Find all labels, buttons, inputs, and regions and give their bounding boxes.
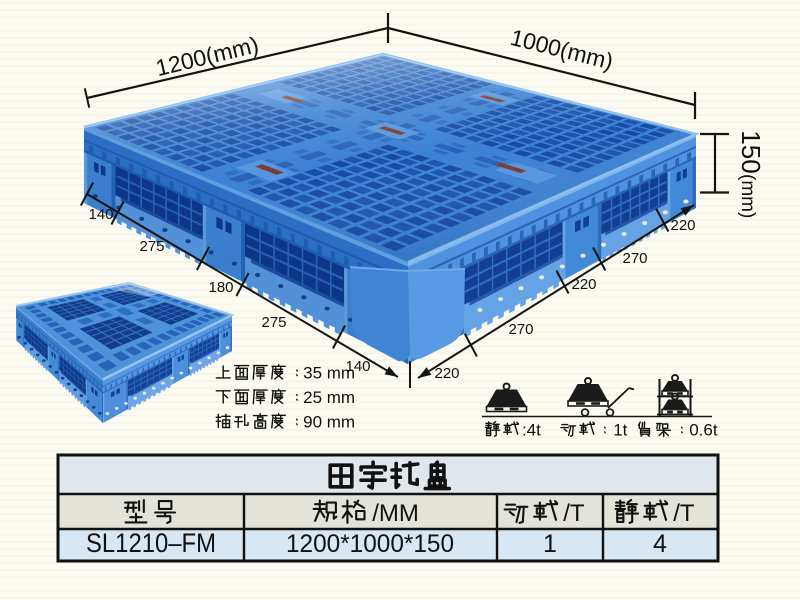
svg-text:25 mm: 25 mm: [303, 388, 355, 407]
svg-text:140: 140: [88, 206, 113, 223]
svg-text:270: 270: [622, 250, 647, 267]
svg-text:4: 4: [653, 530, 667, 558]
svg-text:180: 180: [208, 279, 233, 296]
svg-text:35 mm: 35 mm: [303, 364, 355, 383]
svg-text:1: 1: [543, 530, 557, 558]
svg-text:0.6t: 0.6t: [689, 421, 718, 440]
svg-text:220: 220: [571, 276, 596, 293]
svg-text:270: 270: [508, 321, 533, 338]
svg-text:150: 150: [736, 130, 766, 173]
svg-text:275: 275: [139, 238, 164, 255]
svg-text:90 mm: 90 mm: [303, 413, 355, 432]
svg-text:220: 220: [670, 217, 695, 234]
svg-text:1200*1000*150: 1200*1000*150: [286, 530, 454, 558]
svg-text:(mm): (mm): [737, 174, 758, 218]
svg-text:/MM: /MM: [372, 500, 419, 527]
svg-text:/T: /T: [673, 500, 695, 527]
svg-text:220: 220: [434, 365, 459, 382]
svg-text:275: 275: [261, 314, 286, 331]
svg-text::4t: :4t: [522, 421, 541, 440]
svg-text:1t: 1t: [613, 421, 627, 440]
svg-text:/T: /T: [563, 500, 585, 527]
svg-text:SL1210–FM: SL1210–FM: [86, 528, 216, 558]
